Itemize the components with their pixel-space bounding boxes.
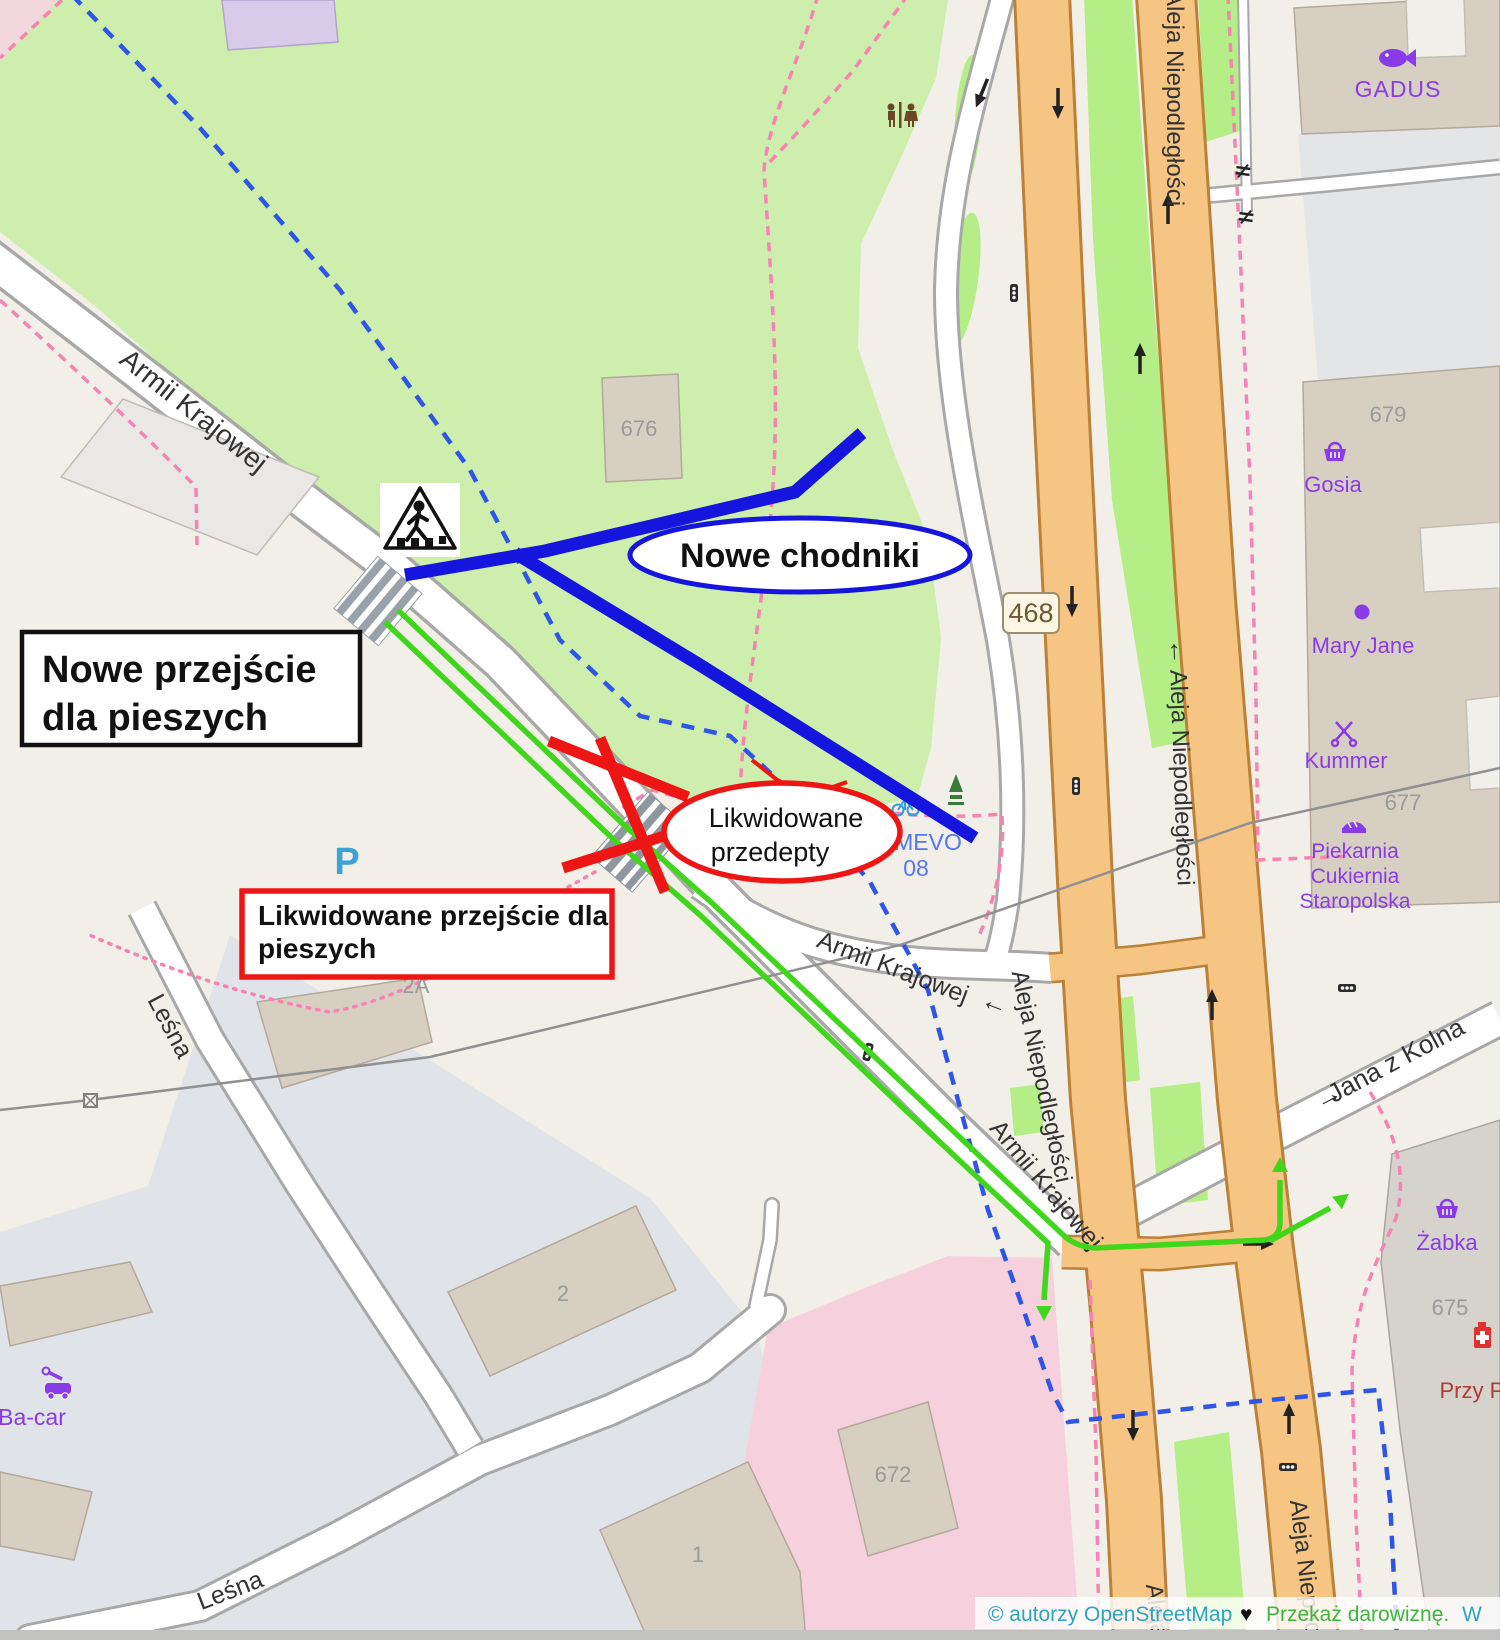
- poi-label-mevo-number: 08: [903, 855, 929, 881]
- attribution-bar: © autorzy OpenStreetMap ♥ Przekaż darowi…: [975, 1597, 1500, 1629]
- street-arrow: ←: [1164, 638, 1195, 665]
- poi-label-gosia: Gosia: [1304, 472, 1362, 497]
- poi-label-mary-jane: Mary Jane: [1312, 633, 1415, 658]
- house-number: 672: [875, 1462, 912, 1487]
- parcel-gray-top-right: [1298, 116, 1500, 380]
- building-lavender: [222, 0, 338, 50]
- callout-removed-paths-line2: przedepty: [711, 837, 830, 867]
- poi-label-gadus: GADUS: [1355, 76, 1442, 102]
- callout-new-crossing-line2: dla pieszych: [42, 697, 268, 739]
- poi-label-piekarnia: Piekarnia: [1311, 840, 1399, 863]
- map-canvas: 468 Armii Krajowej Armii Krajowej ← Armi…: [0, 0, 1500, 1640]
- poi-label-mevo: MEVO: [894, 829, 962, 855]
- house-number: 675: [1432, 1295, 1469, 1320]
- callout-removed-crossing-line2: pieszych: [258, 933, 376, 964]
- poi-label-cukiernia: Cukiernia: [1311, 865, 1400, 888]
- power-pole-icon: [84, 1094, 97, 1107]
- parking-icon: P: [334, 841, 359, 883]
- poi-dot-icon: [1355, 605, 1370, 620]
- window-edge-strip: [0, 1630, 1500, 1640]
- callout-removed-paths-line1: Likwidowane: [709, 803, 864, 833]
- callout-removed-crossing: Likwidowane przejście dla pieszych: [242, 891, 612, 977]
- traffic-light-icon: [1279, 1463, 1297, 1471]
- house-number: 2: [557, 1281, 569, 1306]
- callout-new-crossing-line1: Nowe przejście: [42, 649, 317, 691]
- poi-label-zabka: Żabka: [1416, 1230, 1478, 1255]
- poi-label-bacar: Ba-car: [0, 1404, 66, 1430]
- house-number: 1: [692, 1542, 704, 1567]
- callout-removed-crossing-line1: Likwidowane przejście dla: [258, 900, 609, 931]
- callout-new-crossing: Nowe przejście dla pieszych: [22, 632, 360, 745]
- traffic-light-icon: [1072, 777, 1080, 795]
- pedestrian-crossing-sign-icon: [380, 483, 460, 557]
- annotated-map-screenshot: { "streets": { "armii": "Armii Krajowej"…: [0, 0, 1500, 1640]
- house-number: 676: [621, 416, 658, 441]
- poi-label-kummer: Kummer: [1304, 748, 1387, 773]
- house-number: 679: [1370, 402, 1407, 427]
- route-shield-number: 468: [1008, 598, 1053, 628]
- callout-new-sidewalks-label: Nowe chodniki: [680, 537, 920, 575]
- poi-label-pharmacy: Przy Pa: [1439, 1378, 1500, 1403]
- traffic-light-icon: [1338, 984, 1356, 992]
- house-number: 677: [1385, 790, 1422, 815]
- street-label-aleja-niepodleglosci: Aleja Niepodległości: [1161, 0, 1188, 206]
- attribution-donate-link[interactable]: Przekaż darowiznę.: [1266, 1603, 1449, 1626]
- route-shield-468: 468: [1003, 593, 1059, 633]
- heart-icon: ♥: [1240, 1603, 1252, 1626]
- poi-label-staropolska: Staropolska: [1300, 890, 1411, 913]
- traffic-light-icon: [1010, 284, 1018, 302]
- attribution-truncated-text: W: [1462, 1603, 1482, 1626]
- attribution-osm-link[interactable]: © autorzy OpenStreetMap: [988, 1603, 1232, 1626]
- callout-removed-paths: Likwidowane przedepty: [664, 783, 900, 881]
- callout-new-sidewalks: Nowe chodniki: [630, 518, 970, 592]
